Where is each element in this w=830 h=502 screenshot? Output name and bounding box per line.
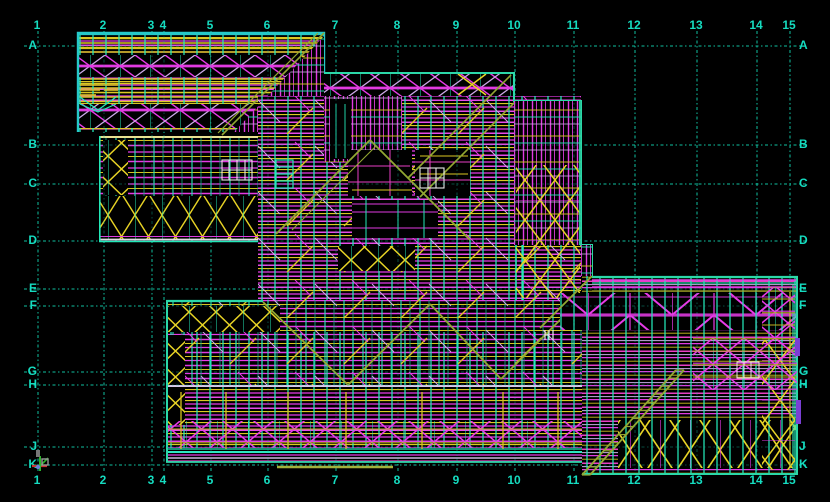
svg-text:11: 11 <box>567 18 580 32</box>
svg-text:4: 4 <box>160 18 167 32</box>
svg-text:F: F <box>799 298 806 312</box>
svg-text:13: 13 <box>689 18 703 32</box>
svg-text:10: 10 <box>507 473 521 487</box>
svg-text:14: 14 <box>749 18 763 32</box>
svg-text:1: 1 <box>34 473 41 487</box>
svg-text:8: 8 <box>394 18 401 32</box>
svg-text:4: 4 <box>160 473 167 487</box>
svg-text:6: 6 <box>264 18 271 32</box>
svg-text:12: 12 <box>627 18 641 32</box>
svg-text:10: 10 <box>507 18 521 32</box>
svg-text:11: 11 <box>567 473 580 487</box>
svg-text:15: 15 <box>782 473 796 487</box>
svg-text:C: C <box>799 176 808 190</box>
svg-text:A: A <box>799 38 808 52</box>
svg-text:5: 5 <box>207 18 214 32</box>
svg-text:14: 14 <box>749 473 763 487</box>
svg-text:7: 7 <box>332 18 339 32</box>
svg-text:G: G <box>28 364 37 378</box>
svg-text:G: G <box>799 364 808 378</box>
svg-text:J: J <box>799 439 806 453</box>
svg-text:B: B <box>28 137 37 151</box>
svg-text:J: J <box>30 439 37 453</box>
svg-text:3: 3 <box>148 473 155 487</box>
svg-text:2: 2 <box>100 473 107 487</box>
svg-text:5: 5 <box>207 473 214 487</box>
svg-text:6: 6 <box>264 473 271 487</box>
svg-text:H: H <box>28 377 37 391</box>
svg-text:E: E <box>799 281 807 295</box>
svg-text:13: 13 <box>689 473 703 487</box>
svg-text:3: 3 <box>148 18 155 32</box>
svg-text:D: D <box>28 233 37 247</box>
svg-text:A: A <box>28 38 37 52</box>
svg-text:F: F <box>30 298 37 312</box>
svg-text:K: K <box>799 457 808 471</box>
svg-text:15: 15 <box>782 18 796 32</box>
svg-text:8: 8 <box>394 473 401 487</box>
svg-text:D: D <box>799 233 808 247</box>
svg-text:K: K <box>28 457 37 471</box>
svg-text:7: 7 <box>332 473 339 487</box>
svg-text:1: 1 <box>34 18 41 32</box>
svg-text:9: 9 <box>453 473 460 487</box>
svg-text:12: 12 <box>627 473 641 487</box>
svg-text:2: 2 <box>100 18 107 32</box>
svg-text:H: H <box>799 377 808 391</box>
svg-text:E: E <box>29 281 37 295</box>
svg-text:9: 9 <box>453 18 460 32</box>
svg-text:B: B <box>799 137 808 151</box>
svg-text:C: C <box>28 176 37 190</box>
